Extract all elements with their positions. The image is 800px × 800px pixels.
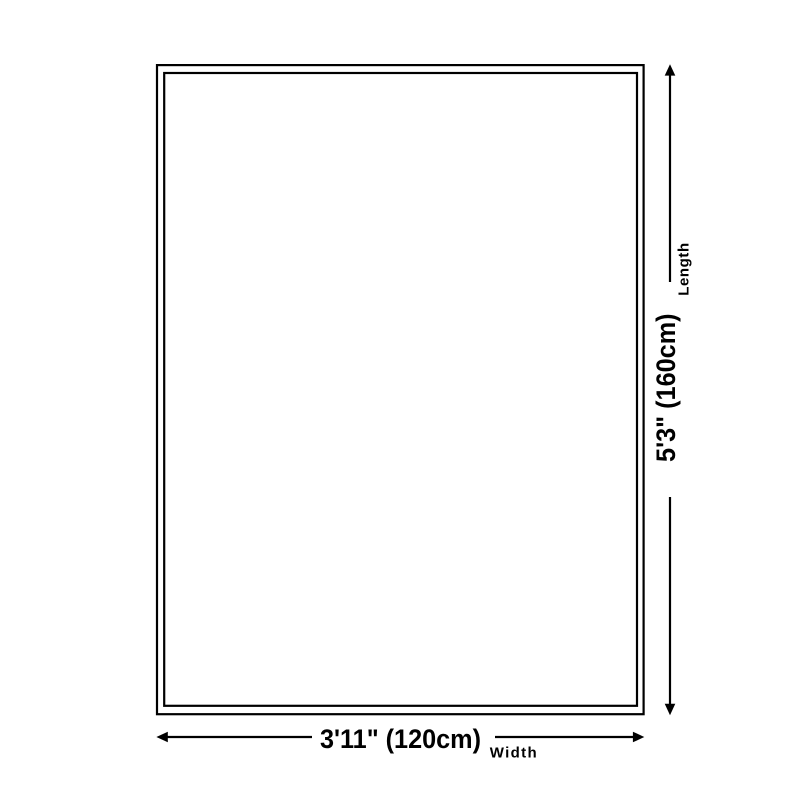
svg-text:Length: Length xyxy=(675,243,692,296)
svg-text:3'11" (120cm): 3'11" (120cm) xyxy=(320,724,481,754)
svg-text:Width: Width xyxy=(490,744,537,761)
svg-text:5'3" (160cm): 5'3" (160cm) xyxy=(651,313,681,462)
